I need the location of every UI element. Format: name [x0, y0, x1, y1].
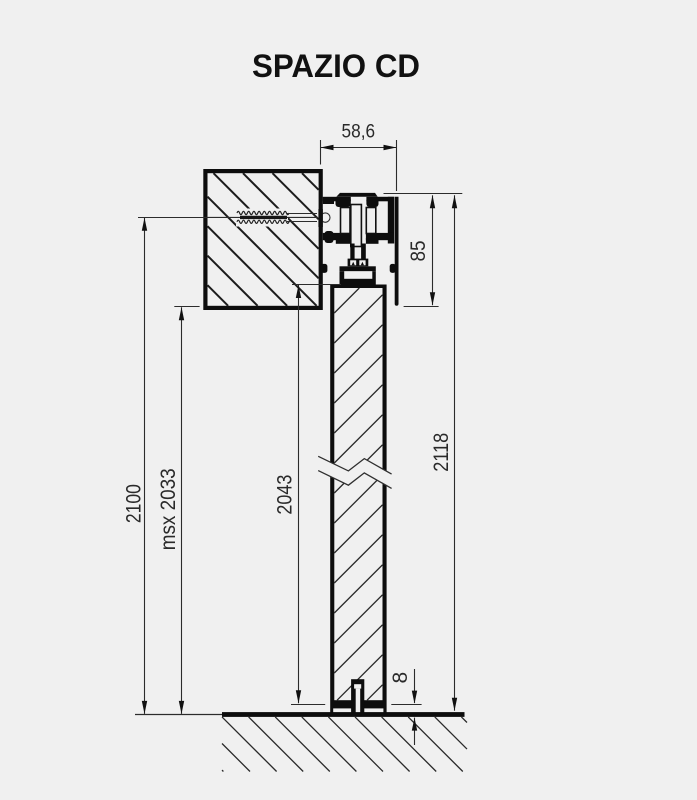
- svg-text:85: 85: [407, 241, 430, 262]
- svg-text:2118: 2118: [430, 433, 453, 472]
- svg-text:58,6: 58,6: [342, 121, 376, 143]
- svg-text:2100: 2100: [122, 484, 145, 523]
- svg-text:8: 8: [389, 672, 412, 684]
- svg-text:msx 2033: msx 2033: [157, 468, 180, 550]
- svg-text:SPAZIO CD: SPAZIO CD: [252, 48, 420, 84]
- svg-text:2043: 2043: [274, 475, 297, 515]
